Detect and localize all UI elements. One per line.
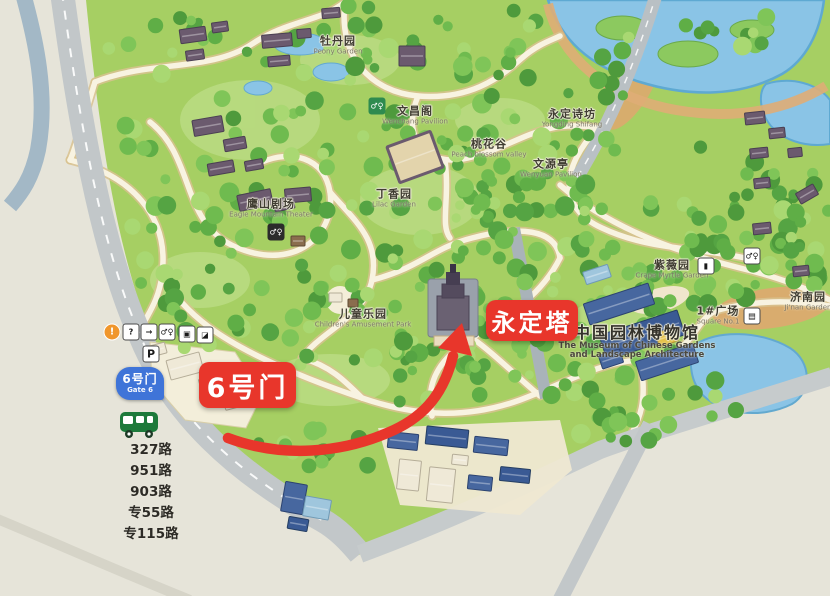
- map-building: [467, 475, 492, 491]
- gate6-badge-name-en: Gate 6: [127, 386, 153, 394]
- map-building: [329, 293, 342, 302]
- park-map: 牡丹园Peony Garden文昌阁Wenchang Pavilion永定诗坊Y…: [0, 0, 830, 596]
- gate6-annotation-label: 6号门: [199, 362, 296, 408]
- yongding-tower-annotation-label: 永定塔: [486, 300, 578, 341]
- bus-route: 327路: [110, 440, 192, 461]
- map-building: [769, 127, 786, 139]
- map-building: [426, 467, 455, 504]
- bus-routes-list: 327路951路903路专55路专115路: [110, 440, 192, 545]
- map-building: [268, 55, 291, 67]
- bus-route: 专115路: [110, 524, 192, 545]
- map-building: [297, 28, 312, 38]
- map-building: [754, 177, 771, 189]
- gate6-badge: 6号门 Gate 6: [116, 367, 164, 400]
- map-building: [452, 454, 469, 466]
- map-building: [348, 299, 358, 307]
- bus-icon: [118, 410, 160, 440]
- bus-route: 903路: [110, 482, 192, 503]
- gate6-badge-name: 6号门: [122, 373, 157, 386]
- map-building: [284, 187, 311, 203]
- map-building: [744, 111, 765, 125]
- bus-route: 951路: [110, 461, 192, 482]
- map-building: [473, 436, 508, 455]
- map-building: [322, 7, 341, 19]
- map-building: [302, 496, 331, 520]
- map-building: [396, 459, 421, 491]
- map-building: [179, 26, 207, 43]
- map-building: [788, 147, 803, 157]
- bus-route: 专55路: [110, 503, 192, 524]
- map-building: [752, 222, 771, 235]
- map-building: [425, 426, 469, 448]
- map-building: [261, 33, 292, 49]
- map-building: [750, 147, 769, 159]
- map-building: [185, 49, 204, 61]
- map-building: [399, 46, 425, 66]
- map-building: [387, 431, 419, 450]
- map-building: [499, 466, 530, 483]
- map-building: [793, 265, 810, 277]
- map-building: [291, 236, 305, 246]
- map-building: [211, 21, 228, 33]
